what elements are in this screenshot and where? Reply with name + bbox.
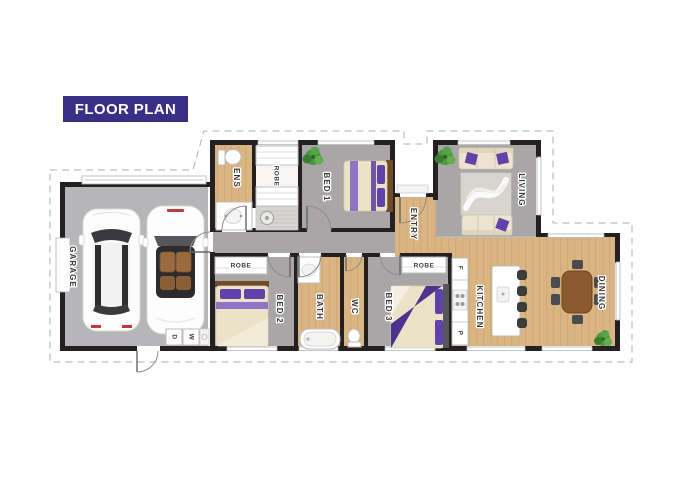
label-washer: W (187, 334, 194, 341)
floor-plan-drawing: GARAGE ENS ROBE BED 1 ENTRY LIVING ROBE … (0, 0, 700, 500)
label-robe-walkin: ROBE (272, 166, 279, 187)
label-entry: ENTRY (409, 208, 418, 240)
label-wc: WC (350, 299, 359, 315)
label-dryer: D (170, 334, 177, 339)
floor-plan-page: FLOOR PLAN (0, 0, 700, 500)
stool (517, 270, 527, 280)
car-convertible (143, 206, 208, 334)
label-bath: BATH (315, 294, 324, 320)
label-robe-bed3: ROBE (414, 263, 435, 270)
label-pantry: P (456, 331, 463, 336)
bed2-furniture (215, 257, 269, 346)
stool (517, 318, 527, 328)
dining-chair (572, 260, 583, 269)
living-furniture (459, 148, 513, 235)
dining-table (562, 271, 592, 313)
label-fridge: F (456, 266, 463, 270)
ens-toilet-bowl (225, 150, 241, 165)
label-robe-bed2: ROBE (231, 263, 252, 270)
ens-toilet-tank (218, 150, 225, 165)
label-dining: DINING (597, 276, 606, 311)
wc-toilet-tank (348, 342, 361, 347)
car-suv (79, 209, 144, 331)
label-garage: GARAGE (68, 246, 77, 288)
dining-chair (572, 315, 583, 324)
wc-toilet-bowl (348, 329, 360, 343)
label-kitchen: KITCHEN (475, 285, 484, 328)
stool (517, 302, 527, 312)
stool (517, 286, 527, 296)
dining-chair (551, 294, 560, 305)
bed1-furniture (344, 160, 393, 212)
wc-fixtures (348, 329, 361, 347)
label-bed2: BED 2 (275, 294, 284, 323)
label-living: LIVING (517, 173, 526, 206)
label-ens: ENS (232, 168, 241, 188)
dining-chair (551, 277, 560, 288)
porch-step (397, 185, 428, 193)
cooktop (453, 290, 467, 310)
corridor-floor (213, 232, 395, 253)
label-bed1: BED 1 (322, 172, 331, 201)
label-bed3: BED 3 (384, 292, 393, 321)
